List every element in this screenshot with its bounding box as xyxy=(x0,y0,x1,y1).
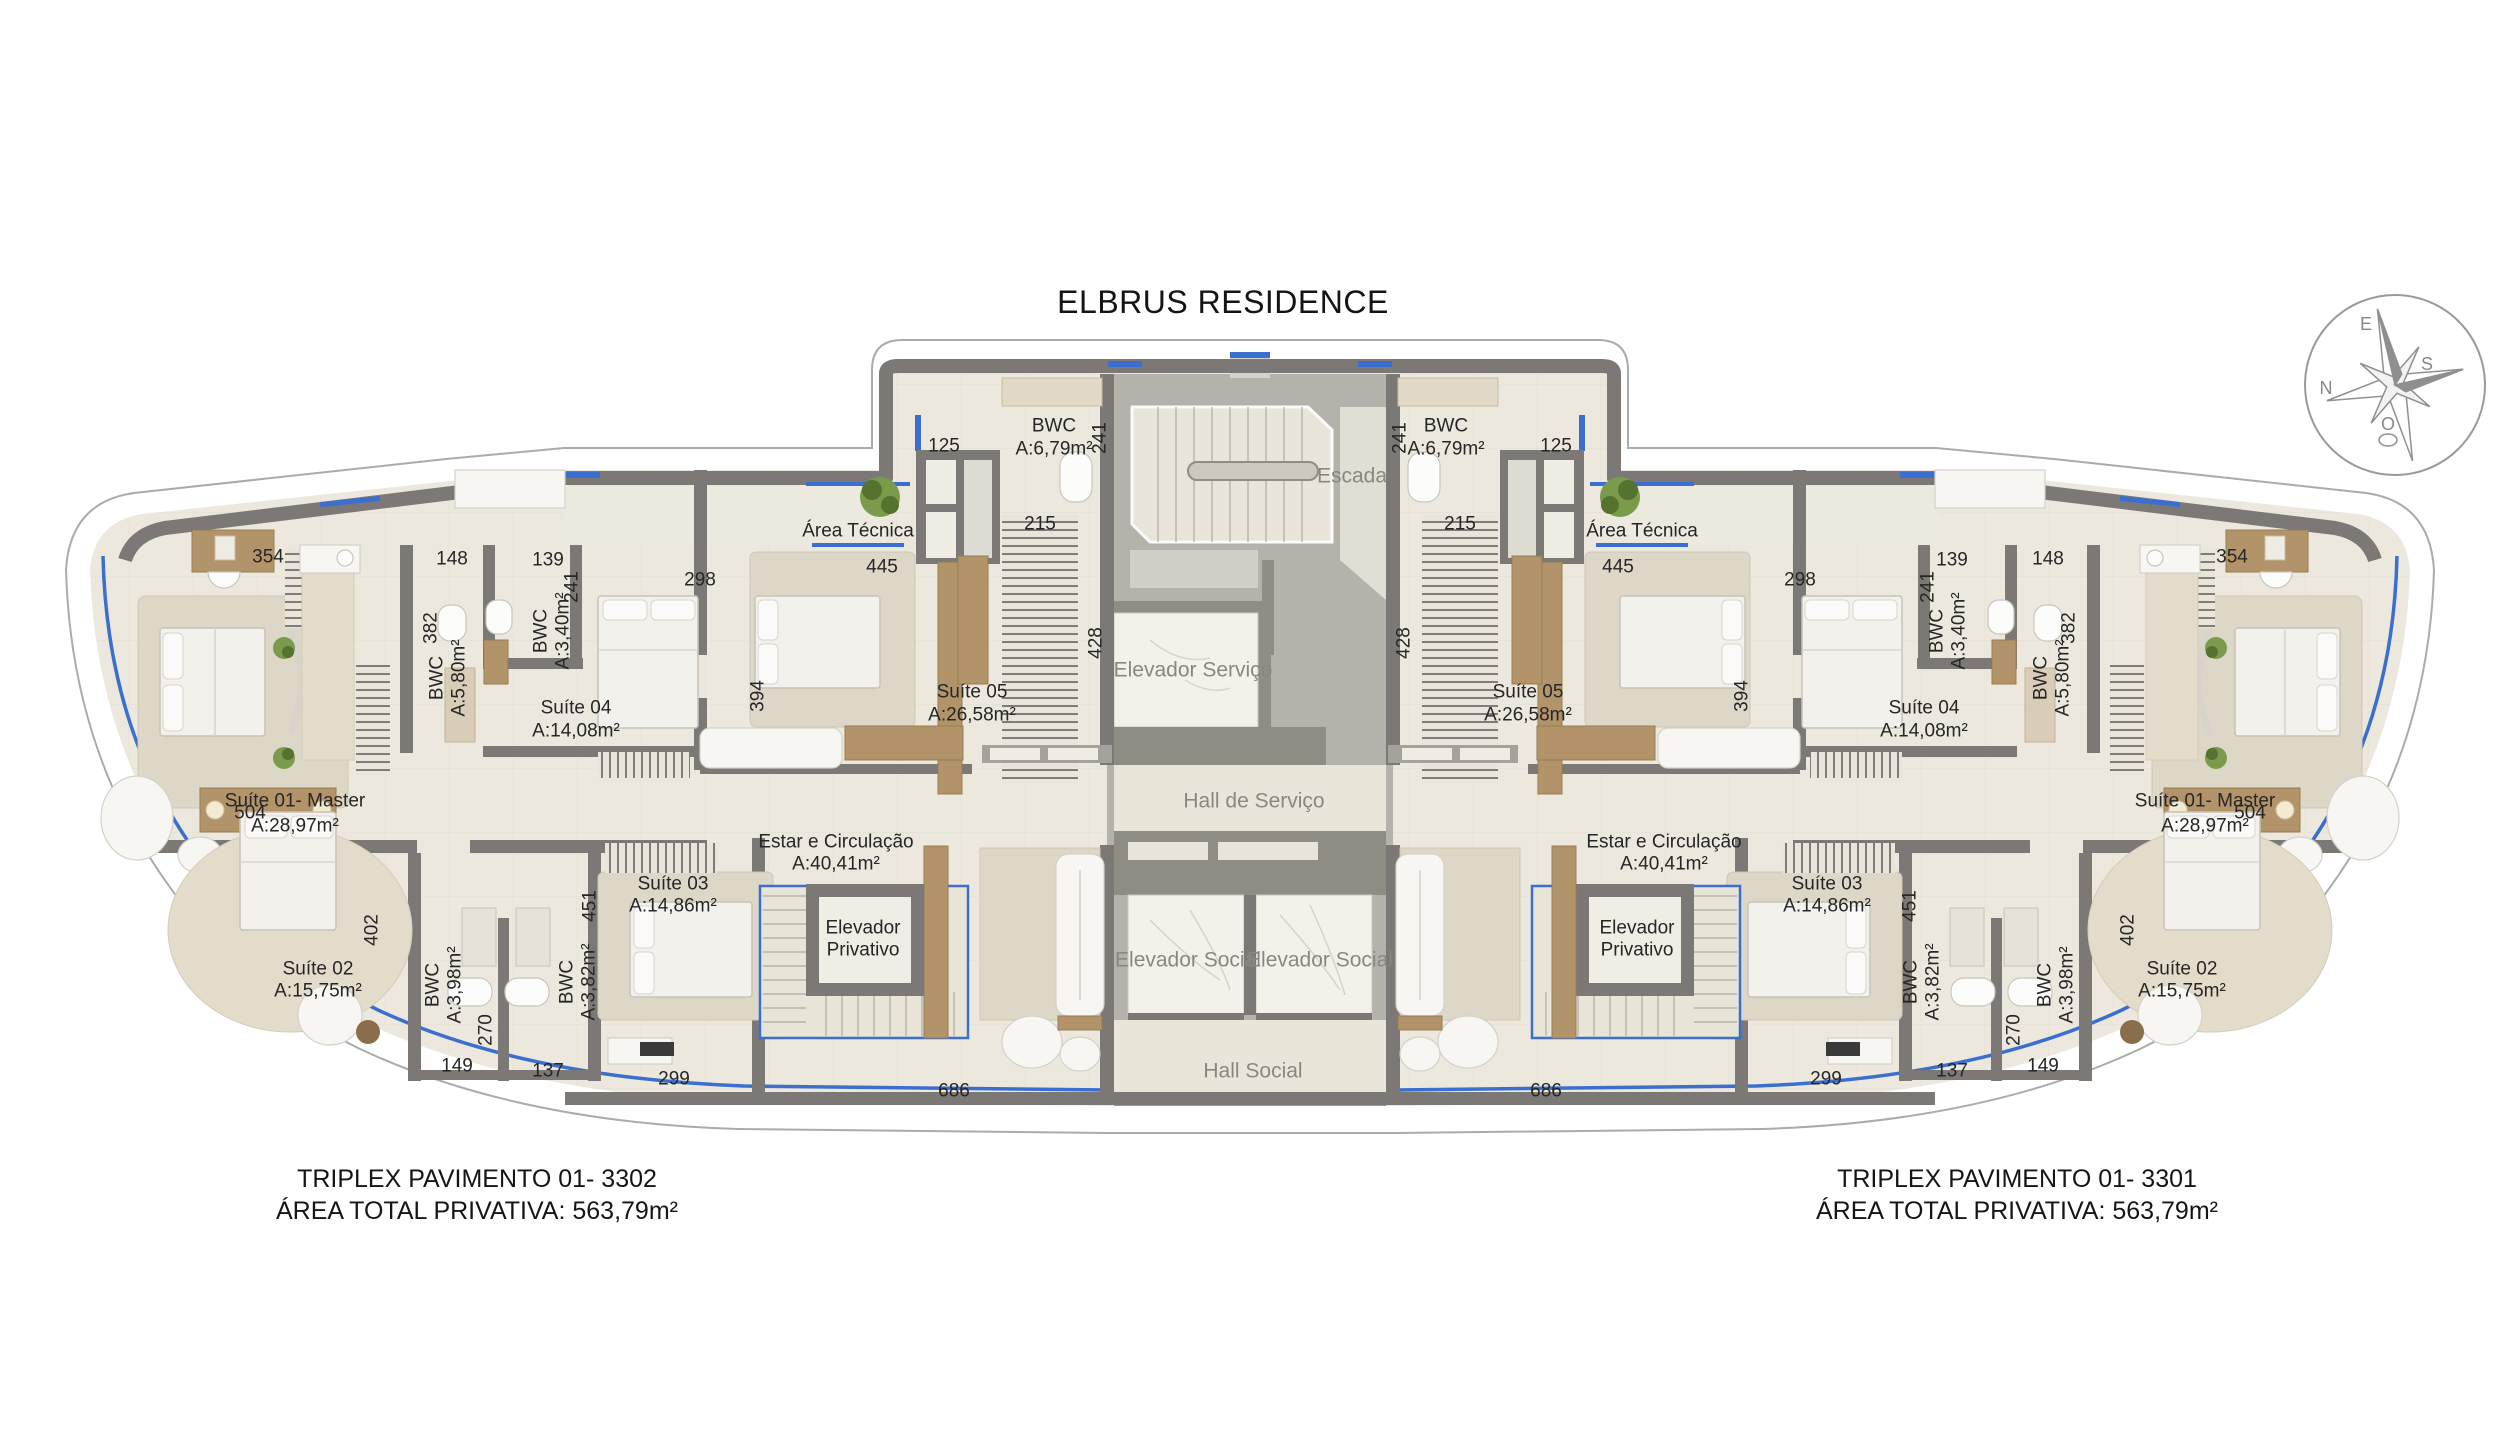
compass-letter-o: O xyxy=(2381,414,2395,434)
dim-298-r: 298 xyxy=(1784,570,1816,591)
label-bwc340-r2: A:3,40m² xyxy=(1949,592,1970,669)
room-elevador-social-2: Elevador Social xyxy=(1247,949,1393,972)
label-suite03-l1: Suíte 03 xyxy=(638,874,709,895)
dim-428-left: 428 xyxy=(1086,627,1107,659)
dim-125-l: 125 xyxy=(928,436,960,457)
label-suite02-r1: Suíte 02 xyxy=(2147,959,2218,980)
label-bwc340-l2: A:3,40m² xyxy=(553,592,574,669)
label-estar-l2: A:40,41m² xyxy=(792,854,880,875)
label-suite04-l1: Suíte 04 xyxy=(541,698,612,719)
label-suite05-l2: A:26,58m² xyxy=(928,705,1016,726)
label-bwc580-r1: BWC xyxy=(2031,656,2052,700)
label-suite04-r2: A:14,08m² xyxy=(1880,721,1968,742)
label-suite04-r1: Suíte 04 xyxy=(1889,698,1960,719)
dim-298-l: 298 xyxy=(684,570,716,591)
label-estar-r2: A:40,41m² xyxy=(1620,854,1708,875)
dim-125-r: 125 xyxy=(1540,436,1572,457)
dim-149-l: 149 xyxy=(441,1056,473,1077)
toilet-icon xyxy=(1060,452,1092,502)
dim-394-r: 394 xyxy=(1732,680,1753,712)
dim-137-l: 137 xyxy=(532,1061,564,1082)
dim-451-l: 451 xyxy=(580,890,601,922)
dim-241b-r: 241 xyxy=(1918,571,1939,603)
label-elevpriv-r1: Elevador xyxy=(1600,918,1676,939)
corridor-runner xyxy=(1002,515,1078,783)
label-suite05-r1: Suíte 05 xyxy=(1493,682,1564,703)
caption-unit-3301-line1: TRIPLEX PAVIMENTO 01- 3301 xyxy=(1737,1163,2297,1195)
core-wall-band xyxy=(1114,727,1326,765)
dim-686-r: 686 xyxy=(1530,1081,1562,1102)
label-suite03-l2: A:14,86m² xyxy=(629,896,717,917)
page-title: ELBRUS RESIDENCE xyxy=(1003,284,1443,321)
dim-394-l: 394 xyxy=(748,680,769,712)
dim-270-l: 270 xyxy=(476,1014,497,1046)
dim-382-r: 382 xyxy=(2059,612,2080,644)
dim-241a-l: 241 xyxy=(1090,422,1111,454)
label-suite03-r1: Suíte 03 xyxy=(1792,874,1863,895)
label-bwc05-r2: A:6,79m² xyxy=(1407,439,1484,460)
dim-451-r: 451 xyxy=(1900,890,1921,922)
room-hall-servico: Hall de Serviço xyxy=(1183,790,1324,813)
compass-letter-e: E xyxy=(2360,314,2372,334)
dim-382-l: 382 xyxy=(421,612,442,644)
dim-299-l: 299 xyxy=(658,1069,690,1090)
dim-428-right: 428 xyxy=(1394,627,1415,659)
floorplan-canvas: EscadaElevador ServiçoHall de ServiçoEle… xyxy=(0,0,2500,1456)
dim-148-l: 148 xyxy=(436,549,468,570)
label-area-tecnica-l: Área Técnica xyxy=(802,521,914,542)
caption-unit-3302-line2: ÁREA TOTAL PRIVATIVA: 563,79m² xyxy=(197,1195,757,1227)
label-bwc382-r2: A:3,82m² xyxy=(1923,943,1944,1020)
label-bwc05-l1: BWC xyxy=(1032,416,1076,437)
label-bwc580-r2: A:5,80m² xyxy=(2053,639,2074,716)
dim-215-r: 215 xyxy=(1444,514,1476,535)
dim-402-l: 402 xyxy=(362,914,383,946)
dim-504-l: 504 xyxy=(234,803,266,824)
label-suite03-r2: A:14,86m² xyxy=(1783,896,1871,917)
label-suite04-l2: A:14,08m² xyxy=(532,721,620,742)
label-bwc580-l1: BWC xyxy=(427,656,448,700)
label-bwc05-r1: BWC xyxy=(1424,416,1468,437)
dim-139-r: 139 xyxy=(1936,550,1968,571)
room-hall-social: Hall Social xyxy=(1203,1060,1302,1083)
dim-354-l: 354 xyxy=(252,547,284,568)
room-elevador-social-1: Elevador Social xyxy=(1115,949,1261,972)
room-hall-social-floor xyxy=(1114,1020,1386,1096)
compass-letter-n: N xyxy=(2320,378,2333,398)
floorplan-page: EscadaElevador ServiçoHall de ServiçoEle… xyxy=(0,0,2500,1456)
label-suite05-r2: A:26,58m² xyxy=(1484,705,1572,726)
dim-241a-r: 241 xyxy=(1390,422,1411,454)
dim-504-r: 504 xyxy=(2234,803,2266,824)
bwc-vanity xyxy=(1002,378,1102,406)
label-bwc382-l2: A:3,82m² xyxy=(579,943,600,1020)
stair-landing xyxy=(1130,550,1258,588)
wall-bottom xyxy=(565,1092,1250,1105)
label-elevpriv-l2: Privativo xyxy=(827,940,900,961)
label-bwc580-l2: A:5,80m² xyxy=(449,639,470,716)
label-bwc05-l2: A:6,79m² xyxy=(1015,439,1092,460)
label-estar-r1: Estar e Circulação xyxy=(1586,832,1741,853)
dim-445-l: 445 xyxy=(866,557,898,578)
label-bwc382-l1: BWC xyxy=(557,960,578,1004)
label-bwc382-r1: BWC xyxy=(1901,960,1922,1004)
label-suite02-l2: A:15,75m² xyxy=(274,981,362,1002)
dim-149-r: 149 xyxy=(2027,1056,2059,1077)
dim-137-r: 137 xyxy=(1936,1061,1968,1082)
dim-402-r: 402 xyxy=(2118,914,2139,946)
stair-handrail xyxy=(1188,462,1318,480)
label-suite02-l1: Suíte 02 xyxy=(283,959,354,980)
label-elevpriv-r2: Privativo xyxy=(1601,940,1674,961)
label-elevpriv-l1: Elevador xyxy=(826,918,902,939)
label-estar-l1: Estar e Circulação xyxy=(758,832,913,853)
dim-354-r: 354 xyxy=(2216,547,2248,568)
label-bwc398-l2: A:3,98m² xyxy=(445,946,466,1023)
room-elevador-social-box xyxy=(1114,831,1386,1020)
label-suite05-l1: Suíte 05 xyxy=(937,682,1008,703)
caption-unit-3302: TRIPLEX PAVIMENTO 01- 3302 ÁREA TOTAL PR… xyxy=(197,1163,757,1227)
label-area-tecnica-r: Área Técnica xyxy=(1586,521,1698,542)
room-escada: Escada xyxy=(1317,465,1387,488)
label-bwc398-l1: BWC xyxy=(423,963,444,1007)
room-elevador-servico: Elevador Serviço xyxy=(1114,659,1273,682)
dim-270-r: 270 xyxy=(2004,1014,2025,1046)
dim-686-l: 686 xyxy=(938,1081,970,1102)
label-bwc340-r1: BWC xyxy=(1927,609,1948,653)
dim-299-r: 299 xyxy=(1810,1069,1842,1090)
dim-139-l: 139 xyxy=(532,550,564,571)
closet-block xyxy=(916,450,1000,564)
dim-215-l: 215 xyxy=(1024,514,1056,535)
label-suite02-r2: A:15,75m² xyxy=(2138,981,2226,1002)
label-bwc398-r2: A:3,98m² xyxy=(2057,946,2078,1023)
caption-unit-3301-line2: ÁREA TOTAL PRIVATIVA: 563,79m² xyxy=(1737,1195,2297,1227)
dim-445-r: 445 xyxy=(1602,557,1634,578)
compass-letter-s: S xyxy=(2421,354,2433,374)
caption-unit-3302-line1: TRIPLEX PAVIMENTO 01- 3302 xyxy=(197,1163,757,1195)
label-bwc398-r1: BWC xyxy=(2035,963,2056,1007)
label-bwc340-l1: BWC xyxy=(531,609,552,653)
dim-148-r: 148 xyxy=(2032,549,2064,570)
caption-unit-3301: TRIPLEX PAVIMENTO 01- 3301 ÁREA TOTAL PR… xyxy=(1737,1163,2297,1227)
